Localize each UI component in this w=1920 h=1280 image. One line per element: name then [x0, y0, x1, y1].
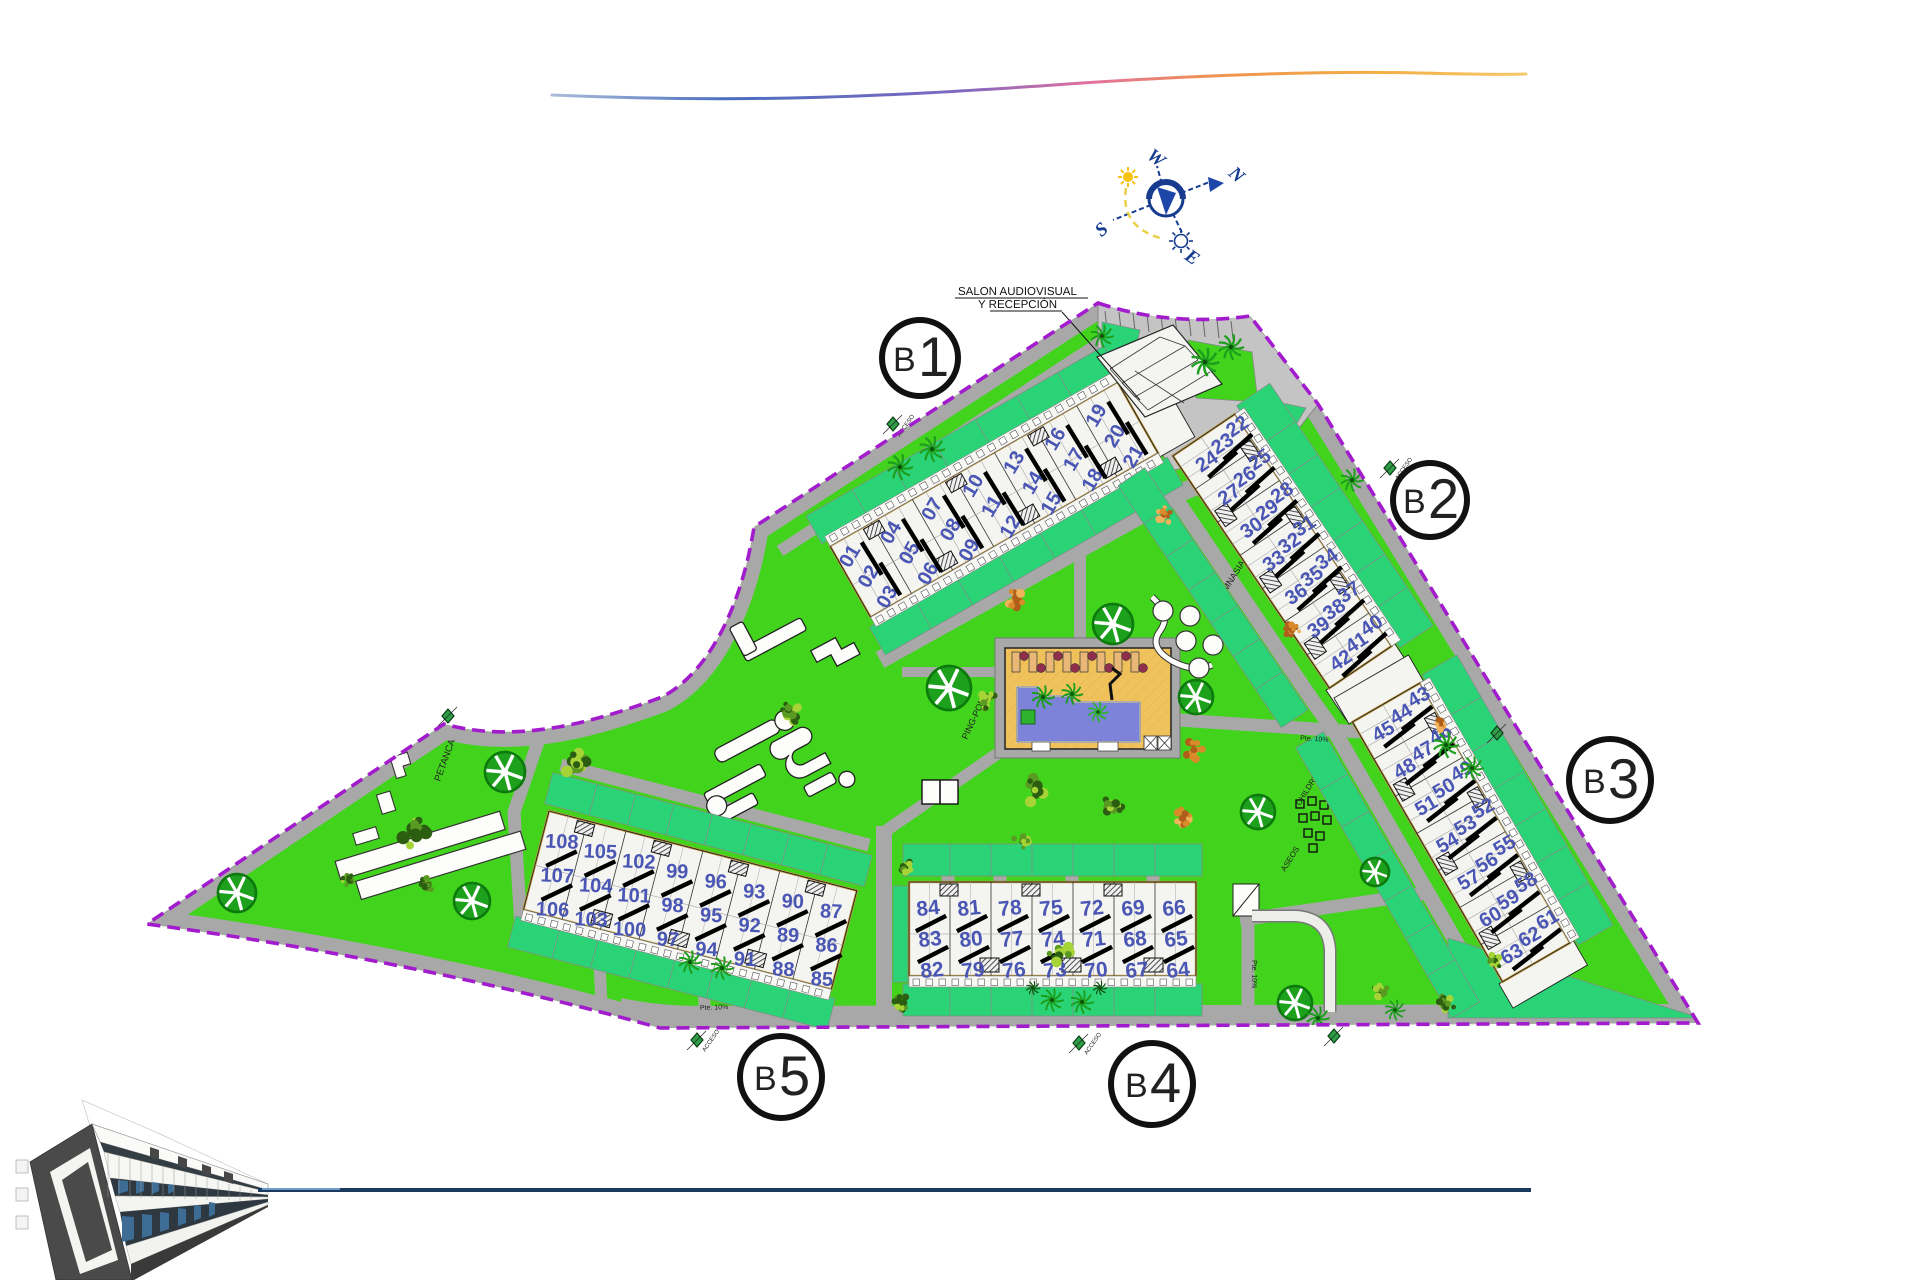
svg-text:85: 85 [810, 968, 833, 991]
svg-text:75: 75 [1038, 896, 1064, 921]
svg-text:SALON AUDIOVISUAL: SALON AUDIOVISUAL [958, 286, 1077, 298]
svg-text:2: 2 [1428, 467, 1459, 530]
svg-text:5: 5 [779, 1044, 810, 1107]
svg-text:90: 90 [781, 890, 804, 913]
svg-text:103: 103 [574, 908, 608, 931]
svg-text:Y RECEPCIÓN: Y RECEPCIÓN [978, 298, 1057, 311]
svg-text:98: 98 [661, 894, 684, 917]
svg-text:4: 4 [1150, 1051, 1181, 1114]
svg-text:B: B [1403, 483, 1426, 521]
svg-text:99: 99 [666, 861, 689, 884]
svg-text:B: B [1583, 763, 1606, 801]
svg-text:97: 97 [656, 928, 679, 951]
svg-text:Pte. 10%: Pte. 10% [700, 1004, 729, 1012]
svg-text:100: 100 [612, 918, 646, 941]
svg-text:81: 81 [956, 896, 982, 921]
svg-text:95: 95 [700, 904, 723, 927]
svg-text:1: 1 [918, 325, 949, 388]
svg-text:87: 87 [820, 900, 843, 923]
svg-text:66: 66 [1161, 896, 1187, 921]
svg-text:B: B [754, 1060, 777, 1098]
svg-text:78: 78 [997, 896, 1023, 921]
svg-text:96: 96 [704, 871, 727, 894]
svg-text:69: 69 [1120, 896, 1146, 921]
svg-text:88: 88 [772, 958, 795, 981]
svg-text:86: 86 [815, 934, 838, 957]
svg-text:91: 91 [733, 948, 756, 971]
svg-text:B: B [893, 341, 916, 379]
svg-text:94: 94 [695, 938, 719, 961]
svg-text:89: 89 [776, 924, 799, 947]
svg-text:93: 93 [743, 880, 766, 903]
svg-text:Pte. 10%: Pte. 10% [1250, 960, 1257, 988]
svg-text:72: 72 [1079, 896, 1105, 921]
svg-text:84: 84 [915, 896, 941, 921]
svg-text:106: 106 [535, 898, 569, 921]
svg-text:3: 3 [1608, 747, 1639, 810]
svg-text:B: B [1125, 1067, 1148, 1105]
svg-text:92: 92 [738, 914, 761, 937]
